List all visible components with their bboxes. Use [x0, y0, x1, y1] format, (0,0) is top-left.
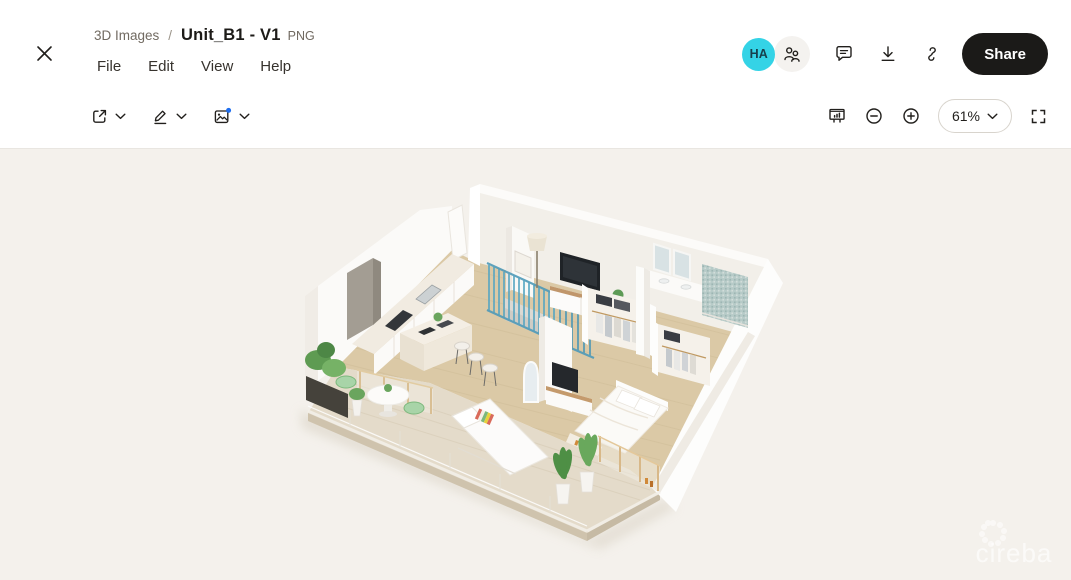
close-icon [35, 44, 54, 63]
edit-image-dropdown[interactable] [210, 105, 252, 128]
chevron-down-icon [239, 113, 250, 120]
file-extension: PNG [288, 29, 315, 43]
zoom-level-dropdown[interactable]: 61% [938, 99, 1012, 133]
watermark: cireba [976, 520, 1053, 568]
menu-bar: File Edit View Help [97, 58, 291, 75]
mirror [654, 244, 670, 274]
present-button[interactable] [827, 106, 847, 126]
zoom-level-value: 61% [952, 108, 980, 124]
mirror [674, 250, 690, 280]
chevron-down-icon [176, 113, 187, 120]
menu-edit[interactable]: Edit [148, 58, 174, 75]
members-button[interactable] [774, 36, 810, 72]
zoom-in-button[interactable] [901, 106, 921, 126]
minus-circle-icon [864, 106, 884, 126]
copy-link-button[interactable] [922, 44, 942, 64]
image-edit-icon [212, 107, 233, 126]
download-button[interactable] [878, 44, 898, 64]
image-canvas[interactable]: cireba [0, 148, 1071, 580]
header-actions: HA [742, 33, 1048, 75]
zoom-out-button[interactable] [864, 106, 884, 126]
annotate-dropdown[interactable] [149, 105, 189, 128]
file-preview-app: 3D Images / Unit_B1 - V1 PNG File Edit V… [0, 0, 1071, 580]
comment-icon [834, 44, 854, 64]
toolbar-left-group [88, 105, 252, 128]
breadcrumb-folder[interactable]: 3D Images [94, 28, 159, 43]
toolbar-right-group: 61% [827, 99, 1048, 133]
preview-toolbar: 61% [0, 97, 1071, 135]
watermark-text: cireba [976, 538, 1053, 568]
menu-help[interactable]: Help [260, 58, 291, 75]
people-icon [782, 44, 802, 64]
pencil-icon [151, 107, 170, 126]
share-button[interactable]: Share [962, 33, 1048, 75]
chevron-down-icon [115, 113, 126, 120]
fullscreen-icon [1029, 107, 1048, 126]
fullscreen-button[interactable] [1029, 107, 1048, 126]
arch-mirror [524, 362, 538, 402]
present-icon [827, 106, 847, 126]
header: 3D Images / Unit_B1 - V1 PNG File Edit V… [0, 0, 1071, 148]
avatar[interactable]: HA [742, 38, 775, 71]
open-in-icon [90, 107, 109, 126]
menu-view[interactable]: View [201, 58, 233, 75]
file-title: Unit_B1 - V1 [181, 26, 281, 45]
comment-button[interactable] [834, 44, 854, 64]
open-in-dropdown[interactable] [88, 105, 128, 128]
link-icon [922, 44, 942, 64]
new-feature-dot [226, 107, 231, 112]
download-icon [878, 44, 898, 64]
chevron-down-icon [987, 113, 998, 120]
floorplan-image: cireba [0, 148, 1071, 580]
plus-circle-icon [901, 106, 921, 126]
breadcrumb-separator: / [168, 28, 172, 43]
menu-file[interactable]: File [97, 58, 121, 75]
close-button[interactable] [34, 43, 54, 63]
breadcrumb: 3D Images / Unit_B1 - V1 PNG [94, 26, 315, 45]
